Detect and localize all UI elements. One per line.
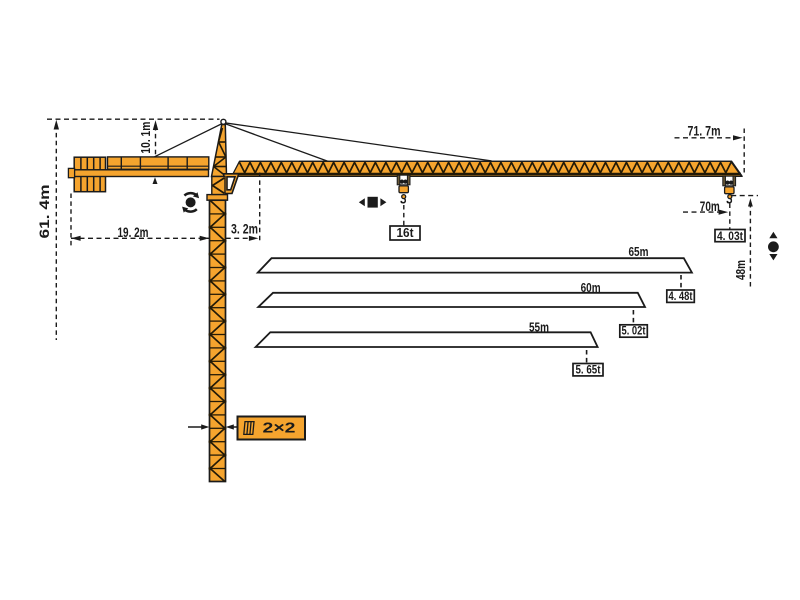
svg-text:4. 03t: 4. 03t	[717, 229, 743, 243]
svg-text:16t: 16t	[397, 226, 415, 240]
svg-text:61. 4m: 61. 4m	[37, 185, 53, 239]
svg-text:65m: 65m	[629, 244, 649, 259]
svg-text:71. 7m: 71. 7m	[688, 123, 721, 138]
svg-text:2×2: 2×2	[263, 420, 296, 437]
svg-text:5. 65t: 5. 65t	[576, 362, 601, 376]
svg-text:48m: 48m	[733, 260, 748, 280]
svg-text:19. 2m: 19. 2m	[118, 225, 149, 240]
svg-text:55m: 55m	[529, 320, 549, 335]
svg-text:60m: 60m	[581, 280, 601, 295]
svg-text:4. 48t: 4. 48t	[669, 289, 693, 303]
svg-text:10. 1m: 10. 1m	[139, 122, 153, 154]
svg-text:5. 02t: 5. 02t	[622, 324, 646, 338]
svg-text:3. 2m: 3. 2m	[231, 221, 258, 236]
